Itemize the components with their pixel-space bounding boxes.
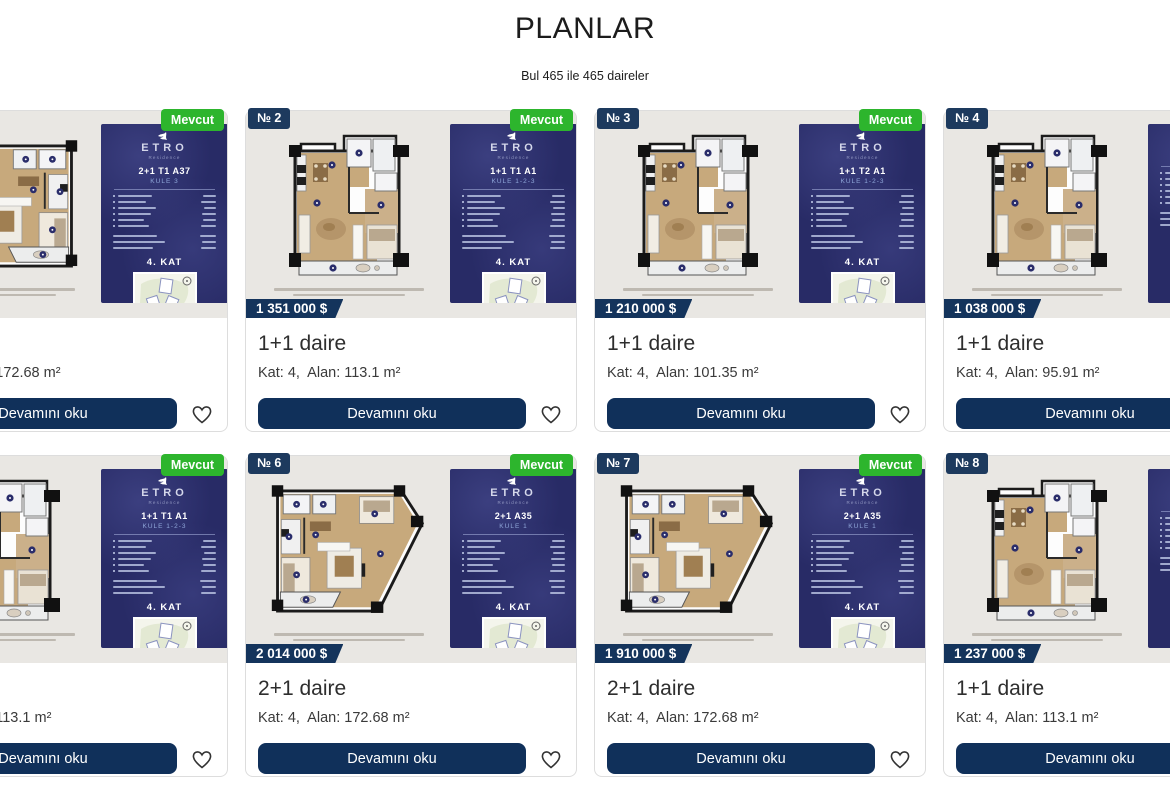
tower-label: KULE 1-2-3 (108, 523, 221, 530)
plan-disclaimer-text (609, 288, 787, 299)
site-plan-svg (484, 274, 544, 303)
card-body: 2+1 daire Kat: 4, Alan: 172.68 m² Devamı… (0, 318, 227, 429)
floor-banner: 4. KAT (108, 602, 221, 613)
favorite-heart-icon[interactable] (538, 747, 564, 771)
card-actions: Devamını oku (956, 743, 1170, 774)
plan-disclaimer-text (0, 633, 89, 644)
plan-disclaimer-text (609, 633, 787, 644)
read-more-button[interactable]: Devamını oku (956, 398, 1170, 429)
etro-bird-icon (855, 476, 871, 486)
site-plan-thumbnail (482, 272, 546, 303)
price-badge: 1 038 000 $ (944, 299, 1041, 318)
card-actions: Devamını oku (607, 398, 913, 429)
floor-plan-svg (268, 478, 430, 624)
etro-logo-text: ETRO (1155, 142, 1170, 154)
etro-logo-text: ETRO (108, 487, 221, 499)
site-plan-svg (135, 619, 195, 648)
floor-banner: 4. KAT (457, 257, 570, 268)
etro-logo-text: ETRO (806, 142, 919, 154)
floor-banner: 4. KAT (806, 602, 919, 613)
unit-meta: Kat: 4, Alan: 172.68 m² (0, 365, 215, 381)
price-badge: 2 014 000 $ (246, 644, 343, 663)
panel-divider (114, 534, 215, 535)
unit-type-title: 1+1 daire (956, 332, 1170, 355)
price-badge: 1 237 000 $ (944, 644, 1041, 663)
read-more-button[interactable]: Devamını oku (258, 398, 526, 429)
site-plan-svg (484, 619, 544, 648)
card-body: 1+1 daire Kat: 4, Alan: 113.1 m² Devamın… (0, 663, 227, 774)
plans-page: PLANLAR Bul 465 ile 465 daireler № 1 Mev… (0, 0, 1170, 785)
etro-logo-text: ETRO (806, 487, 919, 499)
tower-label: KULE 3 (108, 178, 221, 185)
panel-divider (1161, 166, 1170, 167)
plan-info-panel: ETRO Residence 4. KAT (1148, 469, 1170, 648)
site-plan-svg (833, 274, 893, 303)
unit-meta: Kat: 4, Alan: 113.1 m² (956, 710, 1170, 726)
unit-code: 2+1 A35 (806, 511, 919, 521)
availability-badge: Mevcut (161, 109, 224, 131)
plan-card: № 4 Mevcut ETRO Residence (943, 110, 1170, 432)
unit-spec-table (108, 538, 221, 574)
tower-label: KULE 1 (457, 523, 570, 530)
floor-plan-drawing (609, 476, 787, 626)
unit-meta: Kat: 4, Alan: 95.91 m² (956, 365, 1170, 381)
floor-plan-drawing (260, 131, 438, 281)
floor-plan-image[interactable]: ETRO Residence 2+1 A35 KULE 1 (595, 456, 925, 663)
unit-spec-table (108, 193, 221, 229)
plan-disclaimer-text (260, 633, 438, 644)
card-body: 2+1 daire Kat: 4, Alan: 172.68 m² Devamı… (595, 663, 925, 774)
etro-residence-text: Residence (108, 500, 221, 505)
plan-disclaimer-text (0, 288, 89, 299)
favorite-heart-icon[interactable] (887, 402, 913, 426)
floor-banner: 4. KAT (806, 257, 919, 268)
floor-plan-drawing (958, 476, 1136, 626)
floor-plan-drawing (0, 131, 89, 281)
plan-card: № 6 Mevcut ETRO Residence 2+1 A35 KULE 1 (245, 455, 577, 777)
read-more-button[interactable]: Devamını oku (607, 743, 875, 774)
floor-plan-svg (0, 133, 81, 279)
plan-card: № 1 Mevcut ETRO Residence 2+1 T1 A37 KUL… (0, 110, 228, 432)
panel-divider (463, 534, 564, 535)
plan-disclaimer-text (958, 288, 1136, 299)
plan-card: № 5 Mevcut ETRO Residence 1+1 T1 A1 KULE… (0, 455, 228, 777)
plan-card: № 3 Mevcut ETRO Residence 1+1 T2 A1 KULE… (594, 110, 926, 432)
plan-info-panel: ETRO Residence 1+1 T1 A1 KULE 1-2-3 (101, 469, 227, 648)
unit-type-title: 1+1 daire (607, 332, 913, 355)
unit-meta: Kat: 4, Alan: 101.35 m² (607, 365, 913, 381)
panel-divider (1161, 511, 1170, 512)
read-more-button[interactable]: Devamını oku (0, 743, 177, 774)
etro-bird-icon (506, 131, 522, 141)
price-badge: 1 351 000 $ (246, 299, 343, 318)
unit-type-title: 1+1 daire (0, 677, 215, 700)
card-number-badge: № 7 (597, 453, 639, 474)
favorite-heart-icon[interactable] (189, 747, 215, 771)
card-actions: Devamını oku (0, 743, 215, 774)
price-badge: 1 910 000 $ (595, 644, 692, 663)
floor-banner: 4. KAT (1155, 234, 1170, 245)
unit-spec-table (457, 193, 570, 229)
site-plan-svg (135, 274, 195, 303)
card-actions: Devamını oku (956, 398, 1170, 429)
tower-label: KULE 1-2-3 (806, 178, 919, 185)
unit-type-title: 2+1 daire (258, 677, 564, 700)
unit-summary-table (806, 578, 919, 596)
floor-banner: 4. KAT (1155, 579, 1170, 590)
etro-residence-text: Residence (806, 500, 919, 505)
unit-meta: Kat: 4, Alan: 172.68 m² (607, 710, 913, 726)
etro-logo-text: ETRO (457, 142, 570, 154)
etro-residence-text: Residence (108, 155, 221, 160)
read-more-button[interactable]: Devamını oku (956, 743, 1170, 774)
unit-summary-table (108, 233, 221, 251)
unit-code: 1+1 T1 A1 (457, 166, 570, 176)
site-plan-thumbnail (133, 272, 197, 303)
floor-banner: 4. KAT (457, 602, 570, 613)
read-more-button[interactable]: Devamını oku (607, 398, 875, 429)
etro-bird-icon (157, 476, 173, 486)
etro-residence-text: Residence (457, 155, 570, 160)
plan-info-panel: ETRO Residence 1+1 T2 A1 KULE 1-2-3 (799, 124, 925, 303)
favorite-heart-icon[interactable] (887, 747, 913, 771)
site-plan-thumbnail (482, 617, 546, 648)
card-body: 2+1 daire Kat: 4, Alan: 172.68 m² Devamı… (246, 663, 576, 774)
plan-card: № 7 Mevcut ETRO Residence 2+1 A35 KULE 1 (594, 455, 926, 777)
panel-divider (812, 189, 913, 190)
etro-logo-text: ETRO (108, 142, 221, 154)
unit-summary-table (1155, 555, 1170, 573)
read-more-button[interactable]: Devamını oku (0, 398, 177, 429)
floor-plan-image[interactable]: ETRO Residence 1+1 T1 A1 KULE 1-2-3 (0, 456, 227, 663)
floor-plan-svg (286, 133, 412, 279)
unit-type-title: 2+1 daire (607, 677, 913, 700)
floor-plan-svg (0, 478, 63, 624)
favorite-heart-icon[interactable] (538, 402, 564, 426)
plan-card: № 8 Mevcut ETRO Residence (943, 455, 1170, 777)
tower-label: KULE 1-2-3 (457, 178, 570, 185)
card-actions: Devamını oku (0, 398, 215, 429)
availability-badge: Mevcut (510, 454, 573, 476)
floor-plan-image[interactable]: ETRO Residence 2+1 A35 KULE 1 (246, 456, 576, 663)
floor-plan-drawing (609, 131, 787, 281)
etro-bird-icon (157, 131, 173, 141)
etro-residence-text: Residence (457, 500, 570, 505)
card-body: 1+1 daire Kat: 4, Alan: 101.35 m² Devamı… (595, 318, 925, 429)
etro-bird-icon (506, 476, 522, 486)
unit-code: 1+1 T1 A1 (108, 511, 221, 521)
plans-grid: № 1 Mevcut ETRO Residence 2+1 T1 A37 KUL… (0, 0, 1170, 785)
card-body: 1+1 daire Kat: 4, Alan: 95.91 m² Devamın… (944, 318, 1170, 429)
plan-disclaimer-text (958, 633, 1136, 644)
floor-plan-drawing (260, 476, 438, 626)
panel-divider (114, 189, 215, 190)
unit-spec-table (806, 538, 919, 574)
card-number-badge: № 2 (248, 108, 290, 129)
tower-label: KULE 1 (806, 523, 919, 530)
plan-info-panel: ETRO Residence 1+1 T1 A1 KULE 1-2-3 (450, 124, 576, 303)
card-body: 1+1 daire Kat: 4, Alan: 113.1 m² Devamın… (944, 663, 1170, 774)
floor-plan-image[interactable]: ETRO Residence 2+1 T1 A37 KULE 3 (0, 111, 227, 318)
unit-summary-table (806, 233, 919, 251)
unit-type-title: 1+1 daire (258, 332, 564, 355)
read-more-button[interactable]: Devamını oku (258, 743, 526, 774)
unit-meta: Kat: 4, Alan: 172.68 m² (258, 710, 564, 726)
etro-logo-text: ETRO (457, 487, 570, 499)
card-number-badge: № 3 (597, 108, 639, 129)
etro-bird-icon (855, 131, 871, 141)
unit-type-title: 1+1 daire (956, 677, 1170, 700)
card-number-badge: № 8 (946, 453, 988, 474)
price-badge: 1 210 000 $ (595, 299, 692, 318)
floor-plan-image[interactable]: ETRO Residence 1+1 T2 A1 KULE 1-2-3 (595, 111, 925, 318)
site-plan-svg (833, 619, 893, 648)
plan-info-panel: ETRO Residence 4. KAT (1148, 124, 1170, 303)
unit-summary-table (108, 578, 221, 596)
floor-plan-image[interactable]: ETRO Residence 4. KAT (944, 111, 1170, 318)
etro-residence-text: Residence (806, 155, 919, 160)
card-number-badge: № 6 (248, 453, 290, 474)
unit-summary-table (457, 578, 570, 596)
etro-residence-text: Residence (1155, 500, 1170, 505)
availability-badge: Mevcut (859, 454, 922, 476)
panel-divider (463, 189, 564, 190)
plan-disclaimer-text (260, 288, 438, 299)
card-body: 1+1 daire Kat: 4, Alan: 113.1 m² Devamın… (246, 318, 576, 429)
plan-info-panel: ETRO Residence 2+1 A35 KULE 1 (450, 469, 576, 648)
unit-type-title: 2+1 daire (0, 332, 215, 355)
floor-plan-svg (984, 478, 1110, 624)
floor-plan-svg (635, 133, 761, 279)
unit-code: 2+1 T1 A37 (108, 166, 221, 176)
unit-meta: Kat: 4, Alan: 113.1 m² (0, 710, 215, 726)
plan-card: № 2 Mevcut ETRO Residence 1+1 T1 A1 KULE… (245, 110, 577, 432)
floor-plan-image[interactable]: ETRO Residence 1+1 T1 A1 KULE 1-2-3 (246, 111, 576, 318)
availability-badge: Mevcut (510, 109, 573, 131)
floor-banner: 4. KAT (108, 257, 221, 268)
card-actions: Devamını oku (258, 398, 564, 429)
etro-logo-text: ETRO (1155, 487, 1170, 499)
unit-spec-table (806, 193, 919, 229)
unit-spec-table (1155, 515, 1170, 551)
etro-residence-text: Residence (1155, 155, 1170, 160)
availability-badge: Mevcut (859, 109, 922, 131)
card-actions: Devamını oku (258, 743, 564, 774)
unit-spec-table (457, 538, 570, 574)
floor-plan-svg (984, 133, 1110, 279)
favorite-heart-icon[interactable] (189, 402, 215, 426)
card-number-badge: № 4 (946, 108, 988, 129)
site-plan-thumbnail (831, 272, 895, 303)
availability-badge: Mevcut (161, 454, 224, 476)
floor-plan-drawing (958, 131, 1136, 281)
unit-summary-table (457, 233, 570, 251)
plan-info-panel: ETRO Residence 2+1 T1 A37 KULE 3 (101, 124, 227, 303)
unit-spec-table (1155, 170, 1170, 206)
unit-meta: Kat: 4, Alan: 113.1 m² (258, 365, 564, 381)
site-plan-thumbnail (831, 617, 895, 648)
floor-plan-drawing (0, 476, 89, 626)
unit-code: 1+1 T2 A1 (806, 166, 919, 176)
floor-plan-image[interactable]: ETRO Residence 4. KAT (944, 456, 1170, 663)
floor-plan-svg (617, 478, 779, 624)
card-actions: Devamını oku (607, 743, 913, 774)
unit-summary-table (1155, 210, 1170, 228)
site-plan-thumbnail (133, 617, 197, 648)
plan-info-panel: ETRO Residence 2+1 A35 KULE 1 (799, 469, 925, 648)
unit-code: 2+1 A35 (457, 511, 570, 521)
panel-divider (812, 534, 913, 535)
